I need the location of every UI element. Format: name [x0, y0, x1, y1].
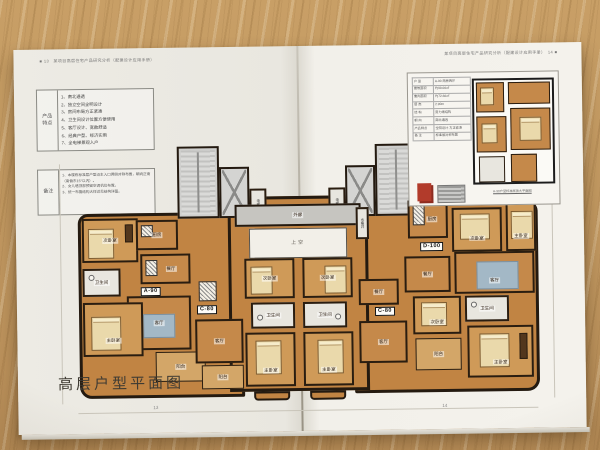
room-balcony: 阳台: [202, 365, 244, 390]
room-master-bedroom: 主卧室: [83, 302, 144, 357]
rug-icon: [143, 314, 175, 338]
unit-label-a90: A-90: [141, 287, 161, 296]
room-master-bedroom: 主卧室: [303, 331, 354, 386]
room-dining: 餐厅: [359, 279, 399, 306]
dimension-line-left: [59, 164, 63, 404]
building-elevation-icon: [437, 185, 465, 203]
inset-caption: A-90户型标准层放大平面图: [467, 187, 557, 193]
counter-icon: [413, 205, 425, 225]
bed-icon: [91, 317, 121, 351]
fridge-icon: [145, 260, 157, 276]
mini-room: [510, 107, 551, 150]
room-dining: 餐厅: [140, 254, 190, 285]
inset-row-label: 产品特点: [413, 125, 434, 132]
inset-row-value: 约72.60㎡: [434, 93, 471, 100]
inset-row-label: 套内面积: [413, 94, 434, 101]
mini-room: [511, 154, 537, 182]
room-plumbing-shaft: 水暖井: [356, 207, 369, 239]
room-living: 客厅: [359, 321, 408, 364]
inset-spec-table: 户 型A-90 两房两厅建筑面积约90.00㎡套内面积约72.60㎡层 高2.9…: [412, 77, 472, 142]
unit-label-c80: C-80: [375, 307, 395, 316]
inset-row-label: 建筑面积: [413, 86, 434, 93]
room-bathroom: 卫生间: [251, 302, 295, 329]
room-bathroom: 卫生间: [303, 301, 347, 328]
inset-row-label: 结 构: [413, 109, 434, 116]
room-living: 客厅: [195, 319, 244, 364]
toilet-icon: [335, 313, 341, 319]
inset-row-value: 剪力墙结构: [434, 109, 471, 116]
room-secondary-bedroom: 次卧室: [82, 218, 139, 263]
inset-mini-floorplan: [472, 77, 555, 184]
room-bathroom: 卫生间: [82, 269, 120, 298]
void-above: 上空: [249, 227, 347, 258]
inset-row-value: 全明设计·方正紧凑: [434, 125, 471, 132]
room-secondary-bedroom: 次卧室: [413, 296, 462, 335]
room-master-bedroom: 主卧室: [245, 332, 296, 387]
unit-label-d100: D-100: [420, 242, 444, 251]
inset-unit-detail: 户 型A-90 两房两厅建筑面积约90.00㎡套内面积约72.60㎡层 高2.9…: [407, 70, 561, 206]
inset-row-value: 2.90m: [434, 101, 471, 108]
toilet-icon: [471, 302, 477, 308]
corridor-label: 外廊: [292, 212, 303, 218]
bed-icon: [480, 87, 494, 105]
inset-row-label: 备 注: [414, 133, 435, 140]
room-bathroom: 卫生间: [465, 295, 509, 322]
room-secondary-bedroom: 次卧室: [244, 258, 295, 299]
bed-icon: [481, 123, 497, 143]
booklet-spread: ■ 13 某项目高层住宅产品研究分析（配建设计应用手册） 某项目高层住宅产品研究…: [13, 42, 586, 435]
inset-row-label: 层 高: [413, 102, 434, 109]
inset-row-value: 约90.00㎡: [434, 85, 471, 92]
unit-label-c80: C-80: [197, 305, 217, 314]
mini-room: [508, 81, 550, 104]
mini-room-bath: [479, 156, 505, 182]
rug-icon: [476, 261, 518, 290]
inset-row-value: 标准层对称布置: [435, 133, 472, 140]
room-kitchen: 厨房: [136, 220, 178, 251]
wardrobe-icon: [519, 333, 527, 359]
room-secondary-bedroom: 次卧室: [302, 257, 353, 298]
void-label: 上空: [290, 240, 306, 246]
room-dining: 餐厅: [404, 256, 450, 293]
inset-table-row: 备 注标准层对称布置: [414, 133, 472, 142]
inset-row-value: 南北通透: [434, 117, 471, 124]
toilet-icon: [257, 315, 263, 321]
stairwell-left: [177, 146, 220, 219]
bed-icon: [519, 117, 541, 141]
inset-row-label: 户 型: [413, 78, 434, 85]
room-master-bedroom: 主卧室: [505, 201, 536, 251]
wood-desk-background: ■ 13 某项目高层住宅产品研究分析（配建设计应用手册） 某项目高层住宅产品研究…: [0, 0, 600, 450]
bed-icon: [88, 229, 114, 259]
outer-corridor: 外廊: [235, 203, 361, 227]
page-title: 高层户型平面图: [58, 372, 184, 395]
room-living: 客厅: [454, 251, 535, 294]
inset-row-value: A-90 两房两厅: [434, 78, 471, 85]
mini-room: [476, 82, 504, 112]
kitchen-hatch-icon: [199, 281, 217, 301]
wardrobe-icon: [125, 224, 133, 242]
page-number-right: 14: [442, 403, 447, 408]
balcony-tab-right: [310, 390, 346, 400]
page-number-left: 13: [153, 405, 158, 410]
dimension-line-bottom: [78, 407, 538, 414]
room-master-bedroom: 主卧室: [467, 325, 534, 378]
balcony-tab-left: [254, 391, 290, 401]
room-balcony: 阳台: [415, 338, 461, 371]
mini-room: [476, 116, 506, 152]
inset-row-label: 朝 向: [413, 117, 434, 124]
room-secondary-bedroom: 次卧室: [452, 207, 503, 252]
red-elevation-stamp-icon: [417, 183, 431, 201]
